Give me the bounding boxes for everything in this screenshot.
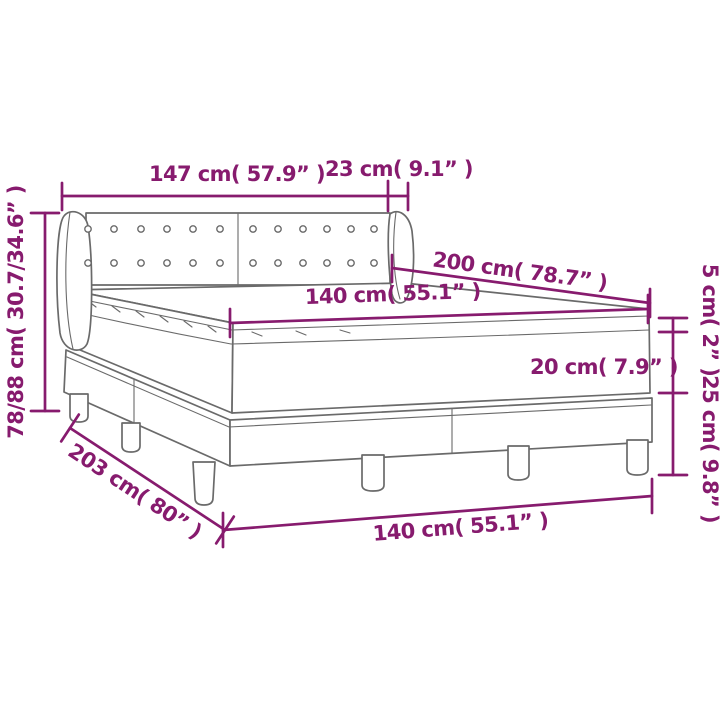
- headboard-width-label: 147 cm( 57.9” ): [149, 162, 325, 186]
- leg: [70, 394, 88, 422]
- diagram-canvas: 147 cm( 57.9” ) 23 cm( 9.1” ) 78/88 cm( …: [0, 0, 720, 720]
- headboard-height-label: 78/88 cm( 30.7/34.6” ): [4, 185, 28, 438]
- pillow-top-height-label: 5 cm( 2” ): [698, 264, 720, 376]
- frame-width-label: 140 cm( 55.1” ): [372, 508, 549, 546]
- headboard: [86, 213, 390, 285]
- headboard-wing-depth-label: 23 cm( 9.1” ): [325, 157, 473, 181]
- leg: [193, 462, 215, 505]
- dimension-headboard-height: 78/88 cm( 30.7/34.6” ): [4, 185, 59, 438]
- bed-dimension-diagram: 147 cm( 57.9” ) 23 cm( 9.1” ) 78/88 cm( …: [0, 0, 720, 720]
- dimension-frame-width: 140 cm( 55.1” ): [223, 479, 652, 547]
- leg: [122, 423, 140, 452]
- base-height-label: 25 cm( 9.8” ): [698, 375, 720, 523]
- leg: [362, 455, 384, 491]
- leg: [508, 446, 529, 480]
- frame-length-label: 203 cm( 80” ): [64, 439, 206, 544]
- mattress-height-label: 20 cm( 7.9” ): [530, 355, 678, 379]
- leg: [627, 440, 648, 475]
- dimension-headboard-width: 147 cm( 57.9” ) 23 cm( 9.1” ): [62, 157, 473, 211]
